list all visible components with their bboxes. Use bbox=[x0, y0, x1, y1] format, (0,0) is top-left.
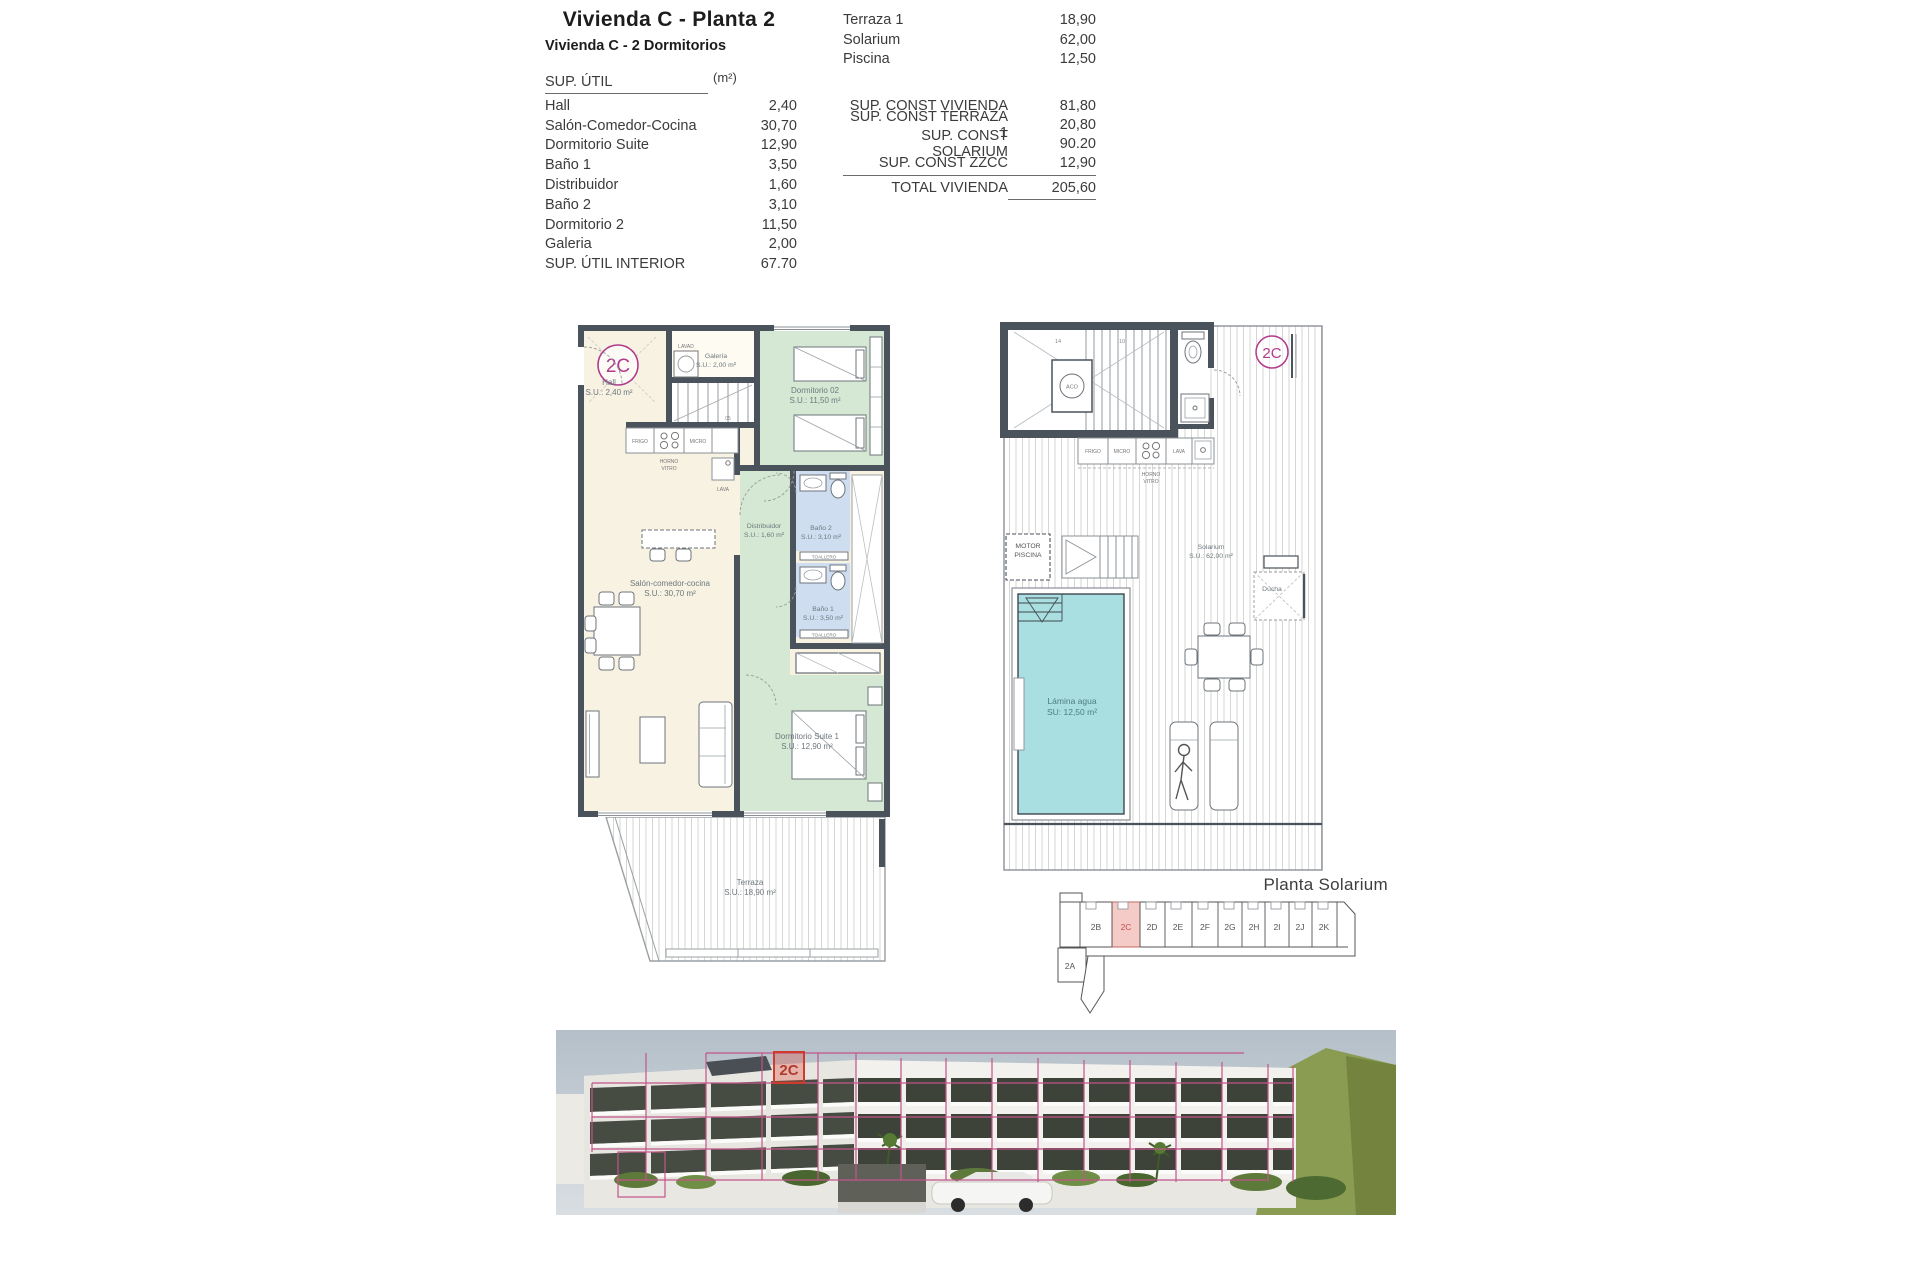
table-row: Galeria2,00 bbox=[545, 235, 797, 255]
key-plan: 2B 2C 2D 2E 2F 2G 2H 2I 2J 2K 2A bbox=[1052, 875, 1392, 1025]
table-total-row: SUP. ÚTIL INTERIOR67.70 bbox=[545, 254, 797, 274]
room-label-salon: Salón-comedor-cocinaS.U.: 30,70 m² bbox=[616, 579, 724, 599]
total-label: SUP. ÚTIL INTERIOR bbox=[545, 256, 737, 272]
toallero-label: TOALLERO bbox=[812, 555, 837, 560]
sup-util-table: SUP. ÚTIL (m²) Hall2,40 Salón-Comedor-Co… bbox=[545, 74, 797, 274]
row-label: Galeria bbox=[545, 236, 737, 252]
highlight-unit-2c: 2C bbox=[774, 1052, 804, 1083]
room-label-galeria: GaleríaS.U.: 2,00 m² bbox=[678, 353, 754, 370]
unit-2e: 2E bbox=[1173, 922, 1184, 932]
building-render-image: 2C bbox=[556, 1030, 1396, 1215]
horno-label: HORNO bbox=[1142, 472, 1161, 478]
row-value: 1,60 bbox=[737, 177, 797, 193]
row-label: SUP. CONST ZZCC bbox=[843, 155, 1008, 171]
row-value: 62,00 bbox=[1008, 32, 1096, 48]
plan-sheet: Vivienda C - Planta 2 Vivienda C - 2 Dor… bbox=[0, 0, 1920, 1280]
micro-label: MICRO bbox=[690, 439, 707, 445]
toallero-label: TOALLERO bbox=[812, 633, 837, 638]
row-value: 18,90 bbox=[1008, 12, 1096, 28]
row-label: Baño 2 bbox=[545, 197, 737, 213]
floor-plan-solarium: ACO 14 10 2C bbox=[1000, 322, 1332, 882]
floor-plan-solarium-drawing: ACO 14 10 2C bbox=[1000, 322, 1332, 882]
solarium-stairs bbox=[1062, 536, 1138, 578]
stair-number: 10 bbox=[1119, 339, 1125, 345]
total-value: 67.70 bbox=[737, 256, 797, 272]
badge-label: 2C bbox=[606, 356, 630, 377]
row-label: Piscina bbox=[843, 51, 1008, 67]
summary-table: Terraza 118,90 Solarium62,00 Piscina12,5… bbox=[843, 10, 1096, 200]
row-value: 3,50 bbox=[737, 157, 797, 173]
unit-2j: 2J bbox=[1296, 922, 1305, 932]
table-row: Distribuidor1,60 bbox=[545, 175, 797, 195]
label-lamina-agua: Lámina aguaSU: 12,50 m² bbox=[1018, 696, 1126, 718]
row-label: Dormitorio 2 bbox=[545, 217, 737, 233]
frigo-label: FRIGO bbox=[632, 439, 648, 445]
room-label-suite: Dormitorio Suite 1S.U.: 12,90 m² bbox=[746, 732, 868, 752]
page-title: Vivienda C - Planta 2 bbox=[540, 8, 798, 32]
row-label: Terraza 1 bbox=[843, 12, 1008, 28]
table-row: Hall2,40 bbox=[545, 96, 797, 116]
room-label-bano1: Baño 1S.U.: 3,50 m² bbox=[788, 606, 858, 623]
row-label: Baño 1 bbox=[545, 157, 737, 173]
label-solarium: SolariumS.U.: 62,00 m² bbox=[1165, 544, 1257, 561]
page-subtitle: Vivienda C - 2 Dormitorios bbox=[545, 38, 803, 54]
table-row: Dormitorio 211,50 bbox=[545, 215, 797, 235]
row-value: 30,70 bbox=[737, 118, 797, 134]
table-total-row: TOTAL VIVIENDA205,60 bbox=[843, 175, 1096, 197]
room-label-dormitorio2: Dormitorio 02S.U.: 11,50 m² bbox=[768, 386, 862, 406]
unit-2a: 2A bbox=[1065, 961, 1076, 971]
unit-2f: 2F bbox=[1200, 922, 1210, 932]
sup-util-header-unit: (m²) bbox=[713, 70, 737, 85]
highlight-label: 2C bbox=[779, 1062, 798, 1079]
row-value: 20,80 bbox=[1008, 117, 1096, 133]
row-value: 12,90 bbox=[1008, 155, 1096, 171]
vitro-label: VITRO bbox=[1143, 479, 1158, 485]
row-label: Salón-Comedor-Cocina bbox=[545, 118, 737, 134]
unit-2i: 2I bbox=[1273, 922, 1280, 932]
sup-util-header: SUP. ÚTIL (m²) bbox=[545, 74, 797, 94]
table-row: Piscina12,50 bbox=[843, 50, 1096, 70]
row-value: 81,80 bbox=[1008, 98, 1096, 114]
table-row: Baño 13,50 bbox=[545, 155, 797, 175]
unit-2d: 2D bbox=[1147, 922, 1158, 932]
row-value: 2,00 bbox=[737, 236, 797, 252]
unit-2b: 2B bbox=[1091, 922, 1102, 932]
total-value: 205,60 bbox=[1008, 180, 1096, 196]
total-label: TOTAL VIVIENDA bbox=[843, 180, 1008, 196]
key-plan-outline bbox=[1058, 893, 1355, 1013]
building-left-sliver bbox=[556, 1094, 584, 1184]
row-value: 90.20 bbox=[1008, 136, 1096, 152]
room-label-bano2: Baño 2S.U.: 3,10 m² bbox=[786, 525, 856, 542]
table-row: Baño 23,10 bbox=[545, 195, 797, 215]
vitro-label: VITRO bbox=[661, 466, 676, 472]
outdoor-shower bbox=[1254, 572, 1304, 620]
key-plan-drawing: 2B 2C 2D 2E 2F 2G 2H 2I 2J 2K 2A bbox=[1052, 875, 1392, 1025]
garage-entrance bbox=[838, 1164, 926, 1202]
table-row: Dormitorio Suite12,90 bbox=[545, 136, 797, 156]
total-underline bbox=[1008, 197, 1096, 200]
lava-label: LAVA bbox=[717, 487, 730, 493]
room-label-hall: HallS.U.: 2,40 m² bbox=[578, 378, 640, 398]
row-value: 2,40 bbox=[737, 98, 797, 114]
horno-label: HORNO bbox=[660, 459, 679, 465]
summary-areas: Terraza 118,90 Solarium62,00 Piscina12,5… bbox=[843, 10, 1096, 69]
aco-label: ACO bbox=[1066, 385, 1079, 391]
right-wing-balconies bbox=[858, 1074, 1294, 1174]
stair-number: 05 bbox=[725, 416, 731, 422]
row-value: 12,50 bbox=[1008, 51, 1096, 67]
table-row: Terraza 118,90 bbox=[843, 10, 1096, 30]
stair-number: 14 bbox=[1055, 339, 1061, 345]
label-motor-piscina: MOTORPISCINA bbox=[1006, 543, 1050, 560]
summary-const: SUP. CONST VIVIENDA81,80 SUP. CONST TERR… bbox=[843, 96, 1096, 200]
label-ducha: Ducha bbox=[1252, 586, 1292, 595]
row-label: Hall bbox=[545, 98, 737, 114]
unit-2c: 2C bbox=[1121, 922, 1132, 932]
sup-util-header-label: SUP. ÚTIL bbox=[545, 74, 708, 94]
floor-plan-apartment: 2C LAVAD 05 bbox=[578, 325, 890, 980]
lava-label: LAVA bbox=[1173, 449, 1186, 455]
row-value: 3,10 bbox=[737, 197, 797, 213]
room-label-terraza: TerrazaS.U.: 18,90 m² bbox=[686, 878, 814, 898]
unit-2h: 2H bbox=[1249, 922, 1260, 932]
micro-label: MICRO bbox=[1114, 449, 1131, 455]
row-value: 12,90 bbox=[737, 137, 797, 153]
table-row: Solarium62,00 bbox=[843, 30, 1096, 50]
row-label: Solarium bbox=[843, 32, 1008, 48]
unit-2k: 2K bbox=[1319, 922, 1330, 932]
row-label: Distribuidor bbox=[545, 177, 737, 193]
table-row: SUP. CONST ZZCC12,90 bbox=[843, 153, 1096, 172]
row-value: 11,50 bbox=[737, 217, 797, 233]
lavad-label: LAVAD bbox=[678, 344, 694, 350]
badge-label: 2C bbox=[1262, 345, 1281, 362]
driveway-ramp bbox=[838, 1202, 926, 1213]
table-row: SUP. CONST SOLARIUM90.20 bbox=[843, 134, 1096, 153]
bench bbox=[1264, 556, 1298, 568]
row-label: Dormitorio Suite bbox=[545, 137, 737, 153]
unit-2g: 2G bbox=[1224, 922, 1235, 932]
building-render: 2C bbox=[556, 1030, 1396, 1215]
table-row: Salón-Comedor-Cocina30,70 bbox=[545, 116, 797, 136]
frigo-label: FRIGO bbox=[1085, 449, 1101, 455]
